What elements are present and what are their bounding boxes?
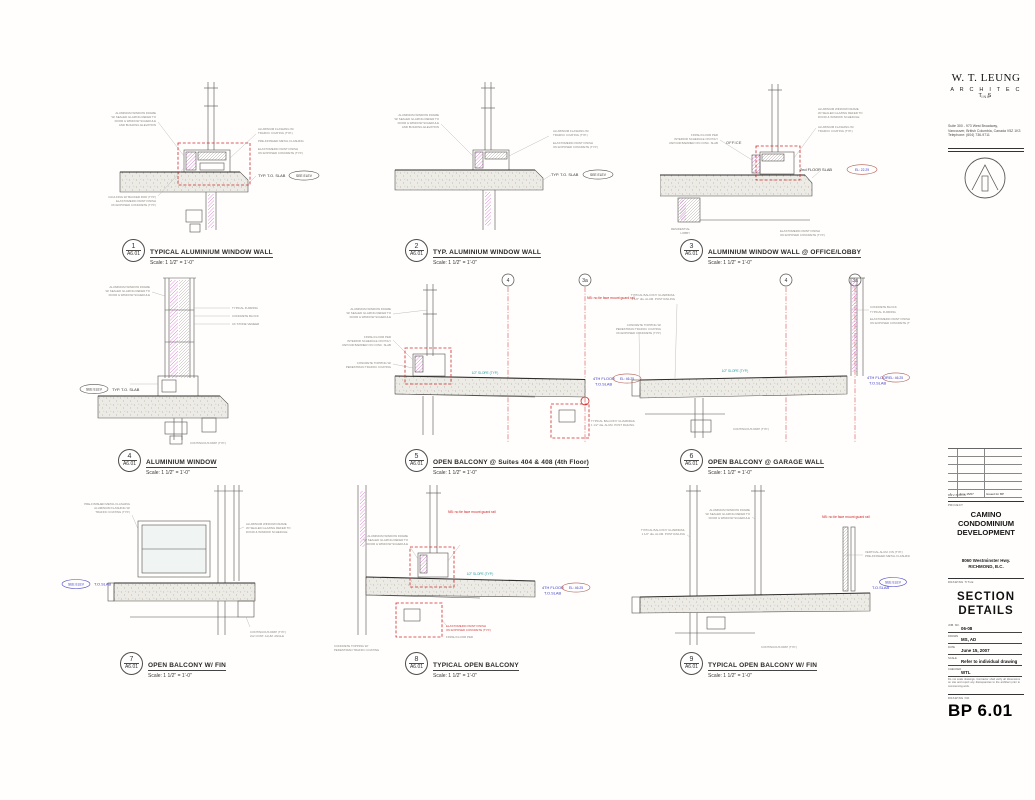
revision-row [948, 457, 1022, 465]
floor-tag: 4TH FLOOR [593, 376, 615, 381]
linework [98, 278, 228, 444]
divider [948, 578, 1024, 579]
detail-scale: Scale: 1 1/2" = 1'-0" [433, 470, 589, 476]
divider [948, 148, 1024, 152]
detail-title: TYPICAL OPEN BALCONY W/ FIN [708, 662, 817, 671]
annotation-text: ON EXPOSED CONCRETE (TYP.) [111, 203, 156, 207]
field-label: CHECKED [948, 668, 961, 671]
drawing-number: BP 6.01 [948, 701, 1013, 721]
annotation-text: ON EXPOSED CONCRETE (TYP.) [616, 331, 661, 335]
firm-inc: INC [948, 95, 1024, 99]
annotation-text: TYPICAL FURRING [870, 310, 897, 314]
project-label: PROJECT [948, 503, 963, 507]
detail-4: ALUMINIUM WINDOW FRAME W/ SEALED GLAZING… [70, 270, 310, 478]
detail-3: OFFICE ALUMINIUM WINDOW FRAME W/ SEALED … [660, 80, 910, 268]
annotation-text: ON EXPOSED CONCRETE (TYP.) [258, 151, 303, 155]
detail-scale: Scale: 1 1/2" = 1'-0" [433, 260, 541, 266]
annotation-text: DOOR & WINDOW SCHEDULE [367, 542, 409, 546]
detail-number: 7 [124, 656, 139, 665]
detail-title: ALUMINIUM WINDOW [146, 459, 217, 468]
field-value: Refer to individual drawing [948, 657, 1022, 664]
detail-scale: Scale: 1 1/2" = 1'-0" [148, 673, 226, 679]
slope-note: 1/2" SLOPE (TYP.) [472, 371, 499, 375]
detail-6-drawing: 4 3a TYPICAL BALCONY GUARDRAIL 1 1/2" di… [615, 270, 910, 450]
annotation-text: ON EXPOSED CONCRETE (TYP.) [553, 145, 598, 149]
linework [395, 82, 543, 230]
annotation-text: ON EXPOSED CONCRETE (TYP.) [780, 233, 825, 237]
annotation-text: CONTINUOUS DRIP (TYP.) [733, 427, 769, 431]
detail-scale: Scale: 1 1/2" = 1'-0" [708, 673, 817, 679]
detail-4-drawing: ALUMINIUM WINDOW FRAME W/ SEALED GLAZING… [70, 270, 310, 450]
detail-sheet-ref: A6.01 [685, 461, 698, 467]
nb-guardrail-note: NB: no tie face mount guard rail [448, 510, 496, 514]
detail-number: 2 [409, 243, 424, 252]
firm-logo [963, 156, 1007, 200]
annotation-text: DOOR & WINDOW SCHEDULE [818, 115, 860, 119]
project-name-line: DEVELOPMENT [948, 529, 1024, 538]
slope-note: 1/2" SLOPE (TYP.) [722, 369, 749, 373]
revision-row [948, 465, 1022, 473]
elevation-tag: EL: 46.25 [569, 586, 583, 590]
field-value: MS, AD [948, 635, 1022, 642]
annotation-text: TRAFFIC COATING (TYP.) [258, 131, 293, 135]
field-label: DRAWN [948, 635, 958, 638]
annotation-text: CONCRETE BLOCK [232, 314, 259, 318]
red-grid-lines [508, 287, 585, 442]
detail-bubble: 6 A6.01 [680, 449, 703, 472]
floor-tag: 4TH FLOOR [867, 375, 889, 380]
drawing-title-label: DRAWING TITLE [948, 580, 974, 584]
detail-number: 3 [684, 243, 699, 252]
detail-8: NB: no tie face mount guard rail ALUMINI… [330, 485, 605, 681]
field-row: DRAWN MS, AD [948, 635, 1022, 644]
detail-sheet-ref: A6.01 [410, 251, 423, 257]
detail-3-drawing: OFFICE ALUMINIUM WINDOW FRAME W/ SEALED … [660, 80, 910, 240]
field-label: DATE [948, 646, 955, 649]
annotation-text: AND BUILDING ELEVATION [402, 125, 439, 129]
room-label-office: OFFICE [726, 141, 742, 145]
elevation-tag: EL: 46.25 [889, 376, 903, 380]
detail-title: OPEN BALCONY @ GARAGE WALL [708, 459, 824, 468]
field-row: CHECKED WTL [948, 668, 1022, 677]
fields-block: JOB. NO. 06-08 DRAWN MS, AD DATE June 15… [948, 624, 1022, 679]
detail-title: OPEN BALCONY W/ FIN [148, 662, 226, 671]
detail-bubble: 5 A6.01 [405, 449, 428, 472]
detail-title: TYPICAL ALUMINIUM WINDOW WALL [150, 249, 273, 258]
annotation-text: CONCRETE BLOCK [870, 305, 897, 309]
detail-7-caption: 7 A6.01 OPEN BALCONY W/ FIN Scale: 1 1/2… [120, 652, 226, 680]
detail-5-drawing: 4 3a NB: no tie face mount guard rail AL… [335, 270, 645, 450]
annotation-text: DOOR & WINDOW SCHEDULE [246, 530, 288, 534]
room-label-lobby: LOBBY [680, 231, 690, 235]
annotation-text: 1 1/2" dia. ALUM. POST RAILING [632, 297, 676, 301]
detail-number: 6 [684, 453, 699, 462]
detail-sheet-ref: A6.01 [410, 461, 423, 467]
field-label: SCALE [948, 657, 957, 660]
detail-bubble: 4 A6.01 [118, 449, 141, 472]
linework [120, 82, 248, 232]
see-elev-tag: SEE ELEV [68, 583, 85, 587]
detail-title: TYP. ALUMINIUM WINDOW WALL [433, 249, 541, 258]
annotation-text: AND BUILDING ELEVATION [119, 123, 156, 127]
annotation-text: DOOR & WINDOW SCHEDULE [350, 315, 392, 319]
detail-number: 8 [409, 656, 424, 665]
slab-tag: TYP. T.O. SLAB [112, 387, 140, 392]
field-row: SCALE Refer to individual drawing [948, 657, 1022, 666]
revisions-label: REVISIONS [948, 493, 966, 497]
slab-tag: 2nd FLOOR SLAB [800, 167, 832, 172]
detail-number: 1 [126, 243, 141, 252]
detail-sheet-ref: A6.01 [127, 251, 140, 257]
detail-5: 4 3a NB: no tie face mount guard rail AL… [335, 270, 645, 478]
detail-title: OPEN BALCONY @ Suites 404 & 408 (4th Flo… [433, 459, 589, 468]
table-divider [984, 449, 985, 498]
detail-bubble: 3 A6.01 [680, 239, 703, 262]
annotation-text: 2x2 CONT. ALUM. ANGLE [250, 634, 284, 638]
address-line: Telephone: (604) 736-9711 [948, 133, 1024, 138]
slab-tag: TYP. T.O. SLAB [258, 173, 286, 178]
annotation-text: FINISH FLOOR PER [446, 635, 473, 639]
detail-bubble: 8 A6.01 [405, 652, 428, 675]
detail-7: PRE-FINISHED METAL FLASHING ALUMINIUM FL… [50, 485, 315, 681]
detail-9: NB: no tie face mount guard rail TYPICAL… [615, 485, 910, 681]
slab-tag: TYP. T.O. SLAB [551, 172, 579, 177]
annotation-text: DOOR & WINDOW SCHEDULE [709, 516, 751, 520]
revision-row [948, 474, 1022, 482]
revision-row [948, 482, 1022, 490]
annotation-text: PEDESTRIAN TRAFFIC COATING [346, 365, 392, 369]
detail-sheet-ref: A6.01 [685, 664, 698, 670]
see-elev-tag: SEE ELEV [885, 581, 902, 585]
annotation-text: CONTINUOUS DRIP (TYP.) [761, 645, 797, 649]
linework [358, 485, 535, 635]
project-address-line: RICHMOND, B.C. [948, 564, 1024, 570]
revision-row [948, 449, 1022, 457]
drawing-no-label: DRAWING NO. [948, 696, 970, 700]
project-address: 8060 Westminster Hwy. RICHMOND, B.C. [948, 558, 1024, 569]
slab-tag: T.O.SLAB [94, 582, 111, 587]
title-block: W. T. LEUNG A R C H I T E C T S INC Suit… [948, 0, 1024, 800]
nb-guardrail-note: NB: no tie face mount guard rail [822, 515, 870, 519]
annotation-text: TRAFFIC COATING (TYP.) [818, 129, 853, 133]
detail-8-drawing: NB: no tie face mount guard rail ALUMINI… [330, 485, 605, 661]
detail-title: TYPICAL OPEN BALCONY [433, 662, 519, 671]
annotation-text: PEDESTRIAN TRAFFIC COATING [334, 648, 380, 652]
annotation-text: TRAFFIC COATING (TYP.) [553, 133, 588, 137]
detail-4-caption: 4 A6.01 ALUMINIUM WINDOW Scale: 1 1/2" =… [118, 449, 217, 477]
linework [660, 84, 812, 222]
annotation-text: VAPOUR BARRIER ON CONC. SLAB [669, 141, 718, 145]
detail-sheet-ref: A6.01 [123, 461, 136, 467]
detail-scale: Scale: 1 1/2" = 1'-0" [708, 470, 824, 476]
detail-2-drawing: ALUMINIUM WINDOW FRAME W/ SEALED GLAZING… [385, 80, 630, 240]
annotation-text: TYPICAL FURRING [232, 306, 259, 310]
detail-number: 5 [409, 453, 424, 462]
annotation-text: PRE-FINISHED METAL FLASHING [258, 139, 305, 143]
detail-7-drawing: PRE-FINISHED METAL FLASHING ALUMINIUM FL… [50, 485, 315, 653]
linework [632, 485, 870, 645]
detail-9-caption: 9 A6.01 TYPICAL OPEN BALCONY W/ FIN Scal… [680, 652, 817, 680]
red-highlight-box [551, 404, 589, 438]
annotation-text: ON EXPOSED CONCRETE (TYP.) [870, 321, 910, 325]
annotation-text: CONTINUOUS DRIP (TYP.) [190, 441, 226, 445]
red-annotation-text: ON EXPOSED CONCRETE (TYP.) [446, 628, 491, 632]
floor-tag: T.O.SLAB [869, 381, 886, 386]
firm-address: Suite 300 - 973 West Broadway, Vancouver… [948, 124, 1024, 138]
detail-sheet-ref: A6.01 [410, 664, 423, 670]
detail-number: 4 [122, 453, 137, 462]
annotation-text: PRE-FINISHED METAL FLASHING [865, 554, 910, 558]
detail-5-caption: 5 A6.01 OPEN BALCONY @ Suites 404 & 408 … [405, 449, 589, 477]
field-row: DATE June 15, 2007 [948, 646, 1022, 655]
detail-1-caption: 1 A6.01 TYPICAL ALUMINIUM WINDOW WALL Sc… [122, 239, 273, 267]
field-row: JOB. NO. 06-08 [948, 624, 1022, 633]
drawing-sheet: ALUMINIUM WINDOW FRAME W/ SEALED GLAZING… [0, 0, 1035, 800]
detail-9-drawing: NB: no tie face mount guard rail TYPICAL… [615, 485, 910, 661]
detail-8-caption: 8 A6.01 TYPICAL OPEN BALCONY Scale: 1 1/… [405, 652, 519, 680]
drawing-title: SECTION DETAILS [948, 590, 1024, 619]
drawing-title-line: SECTION [948, 590, 1024, 604]
detail-6: 4 3a TYPICAL BALCONY GUARDRAIL 1 1/2" di… [615, 270, 910, 478]
floor-tag: T.O.SLAB [544, 591, 561, 596]
annotation-text: 1 1/2" dia. ALUM. POST RAILING [642, 532, 686, 536]
detail-scale: Scale: 1 1/2" = 1'-0" [150, 260, 273, 266]
slope-note: 1/2" SLOPE (TYP.) [467, 572, 494, 576]
annotation-text: DOOR & WINDOW SCHEDULE [109, 293, 151, 297]
firm-name: W. T. LEUNG [948, 72, 1024, 84]
annotation-text: VAPOUR BARRIER ON CONC. SLAB [342, 343, 391, 347]
detail-scale: Scale: 1 1/2" = 1'-0" [708, 260, 861, 266]
detail-3-caption: 3 A6.01 ALUMINIUM WINDOW WALL @ OFFICE/L… [680, 239, 861, 267]
see-elev-tag: SEE ELEV [86, 388, 103, 392]
detail-scale: Scale: 1 1/2" = 1'-0" [433, 673, 519, 679]
disclaimer: Do not scale drawings. Contractor shall … [948, 678, 1020, 688]
detail-2-caption: 2 A6.01 TYP. ALUMINIUM WINDOW WALL Scale… [405, 239, 541, 267]
detail-bubble: 1 A6.01 [122, 239, 145, 262]
detail-sheet-ref: A6.01 [125, 664, 138, 670]
elevation-tag: EL: 22.29 [855, 168, 869, 172]
linework [108, 485, 255, 635]
linework [632, 278, 865, 438]
detail-scale: Scale: 1 1/2" = 1'-0" [146, 470, 217, 476]
leader-lines [687, 517, 863, 555]
see-elev-tag: SEE ELEV [590, 173, 607, 177]
field-value: June 15, 2007 [948, 646, 1022, 653]
detail-title: ALUMINIUM WINDOW WALL @ OFFICE/LOBBY [708, 249, 861, 258]
detail-6-caption: 6 A6.01 OPEN BALCONY @ GARAGE WALL Scale… [680, 449, 824, 477]
revision-table: 1 June 15/07 Issued for BP [948, 448, 1022, 498]
floor-tag: 4TH FLOOR [542, 585, 564, 590]
detail-number: 9 [684, 656, 699, 665]
detail-bubble: 7 A6.01 [120, 652, 143, 675]
grid-bubble-label: 4 [785, 278, 788, 284]
see-elev-tag: SEE ELEV [296, 174, 313, 178]
red-highlight-box [396, 603, 442, 637]
detail-2: ALUMINIUM WINDOW FRAME W/ SEALED GLAZING… [385, 80, 630, 268]
floor-tag: T.O.SLAB [595, 382, 612, 387]
field-label: JOB. NO. [948, 624, 960, 627]
detail-bubble: 9 A6.01 [680, 652, 703, 675]
grid-bubble-label: 4 [507, 278, 510, 284]
divider [948, 501, 1024, 502]
divider [948, 694, 1024, 695]
detail-1-drawing: ALUMINIUM WINDOW FRAME W/ SEALED GLAZING… [100, 80, 370, 240]
detail-1: ALUMINIUM WINDOW FRAME W/ SEALED GLAZING… [100, 80, 370, 268]
linework [395, 284, 585, 435]
drawing-title-line: DETAILS [948, 604, 1024, 618]
revision-desc: Issued for BP [986, 492, 1004, 496]
table-divider [957, 449, 958, 498]
grid-bubble-label: 3a [582, 278, 588, 284]
detail-bubble: 2 A6.01 [405, 239, 428, 262]
leader-lines [639, 304, 869, 388]
annotation-text: TRAFFIC COATING (TYP.) [95, 510, 130, 514]
red-grid-lines [786, 287, 855, 442]
project-name: CAMINO CONDOMINIUM DEVELOPMENT [948, 511, 1024, 538]
annotation-text: CF STONE VENEER [232, 322, 259, 326]
detail-sheet-ref: A6.01 [685, 251, 698, 257]
